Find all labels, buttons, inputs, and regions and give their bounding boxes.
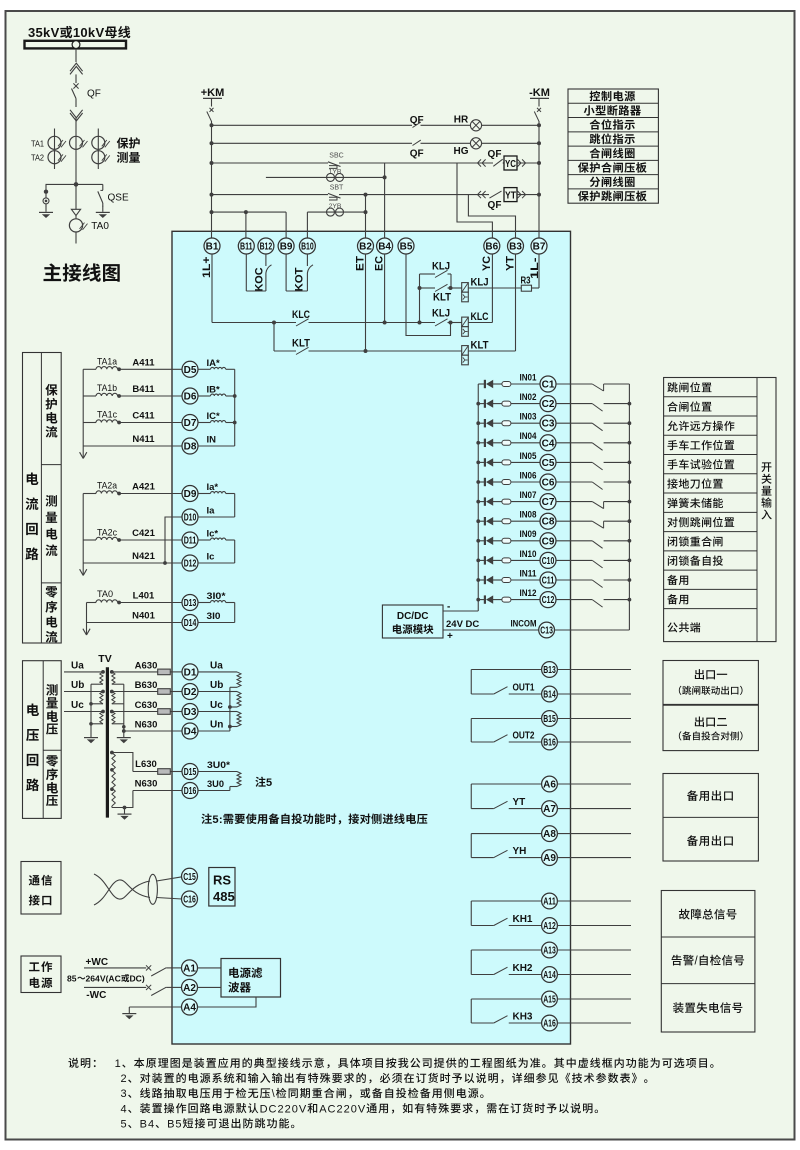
svg-text:DC): DC) [129, 973, 144, 983]
svg-text:C2: C2 [542, 399, 555, 410]
svg-text:3I0: 3I0 [207, 611, 221, 622]
svg-text:C421: C421 [132, 528, 155, 539]
svg-text:C630: C630 [135, 700, 158, 711]
svg-text:C10: C10 [542, 556, 555, 567]
svg-text:A14: A14 [543, 970, 556, 981]
svg-text:C11: C11 [542, 576, 555, 587]
svg-text:C8: C8 [542, 517, 555, 528]
svg-text:A421: A421 [132, 482, 155, 493]
svg-text:A6: A6 [543, 780, 556, 791]
svg-text:1L+: 1L+ [201, 257, 213, 279]
svg-text:TA0: TA0 [97, 589, 113, 599]
svg-text:Ia: Ia [207, 506, 216, 517]
svg-text:/: / [694, 956, 698, 968]
svg-text:A7: A7 [543, 804, 556, 815]
svg-text:B411: B411 [132, 384, 155, 395]
svg-text:A1: A1 [183, 963, 196, 974]
svg-text:5:: 5: [212, 814, 222, 826]
svg-text:B4: B4 [378, 242, 391, 253]
svg-text:QF: QF [87, 89, 101, 100]
svg-text:L630: L630 [135, 759, 157, 770]
svg-text:KOT: KOT [294, 267, 306, 291]
svg-text:5: 5 [121, 1118, 128, 1130]
svg-text:IN01: IN01 [520, 372, 538, 383]
svg-text:KLJ: KLJ [432, 261, 450, 273]
svg-text:85: 85 [67, 973, 77, 983]
svg-text:485: 485 [213, 889, 235, 904]
svg-text:B5: B5 [400, 242, 413, 253]
svg-text:B4: B4 [140, 1118, 155, 1130]
svg-text:2: 2 [121, 1073, 128, 1085]
svg-text:3U0: 3U0 [207, 779, 224, 790]
svg-text:Ub: Ub [210, 680, 223, 691]
svg-text:C6: C6 [542, 478, 555, 489]
svg-text:+WC: +WC [86, 957, 109, 968]
svg-text:TV: TV [98, 653, 111, 665]
svg-text:D11: D11 [184, 536, 197, 547]
svg-text:D13: D13 [184, 598, 197, 609]
svg-text:DC/DC: DC/DC [397, 611, 429, 622]
svg-text:TA1b: TA1b [97, 383, 117, 393]
svg-text:KLJ: KLJ [471, 277, 489, 289]
svg-text:B10: B10 [301, 242, 314, 253]
svg-text:DC220V: DC220V [260, 1103, 308, 1115]
svg-text:QF: QF [410, 149, 424, 160]
svg-text:KLJ: KLJ [432, 308, 450, 320]
svg-text:C13: C13 [540, 626, 553, 637]
svg-text:B630: B630 [135, 680, 158, 691]
svg-text:KLT: KLT [292, 338, 310, 350]
svg-text:D1: D1 [184, 667, 197, 678]
svg-text:A11: A11 [543, 897, 556, 908]
svg-text:A8: A8 [543, 829, 556, 840]
svg-text:KLC: KLC [292, 309, 310, 321]
svg-text:3: 3 [121, 1088, 128, 1100]
svg-text:IN09: IN09 [520, 529, 537, 540]
svg-text:N401: N401 [132, 611, 155, 622]
svg-text:QF: QF [410, 115, 424, 126]
svg-text:YT: YT [505, 256, 517, 271]
svg-text:TA2c: TA2c [97, 528, 117, 538]
svg-text:L401: L401 [133, 591, 155, 602]
svg-text:D3: D3 [184, 707, 197, 718]
svg-text:A9: A9 [543, 853, 556, 864]
svg-text:Un: Un [210, 719, 223, 730]
svg-text:IN12: IN12 [520, 588, 537, 599]
svg-text:N421: N421 [132, 551, 155, 562]
svg-text:C4: C4 [542, 438, 555, 449]
svg-text:A16: A16 [543, 1019, 556, 1030]
svg-text:24V DC: 24V DC [446, 619, 479, 630]
svg-text:N630: N630 [135, 719, 158, 730]
svg-text:IN07: IN07 [520, 490, 537, 501]
svg-text:QSE: QSE [108, 193, 129, 204]
svg-text:D5: D5 [184, 365, 197, 376]
svg-text:D14: D14 [184, 618, 197, 629]
svg-text:KLT: KLT [433, 292, 451, 304]
svg-text:IN04: IN04 [520, 431, 538, 442]
svg-text:1: 1 [115, 1058, 122, 1070]
svg-text:OUT2: OUT2 [513, 731, 535, 742]
svg-text:B14: B14 [543, 690, 556, 701]
svg-text:B6: B6 [485, 242, 498, 253]
svg-text:B9: B9 [280, 242, 293, 253]
svg-text:Ic: Ic [207, 552, 215, 563]
svg-text:Ua: Ua [71, 660, 84, 671]
svg-text:1YB: 1YB [329, 168, 342, 175]
svg-text:YC: YC [481, 256, 493, 271]
svg-text:+: + [447, 631, 453, 642]
svg-text:Ua: Ua [210, 660, 223, 671]
svg-text:TA1a: TA1a [97, 356, 117, 366]
svg-text:IN08: IN08 [520, 510, 537, 521]
svg-text:D9: D9 [184, 489, 197, 500]
svg-text:-WC: -WC [86, 990, 106, 1001]
svg-text:TA2: TA2 [31, 153, 44, 163]
svg-text:4: 4 [121, 1103, 128, 1115]
svg-text:A4: A4 [183, 1003, 196, 1014]
svg-text:3U0*: 3U0* [207, 760, 230, 771]
svg-text:KOC: KOC [254, 267, 266, 291]
svg-text:C3: C3 [542, 419, 555, 430]
svg-text:B1: B1 [206, 242, 219, 253]
svg-text:D16: D16 [184, 786, 197, 797]
svg-text:OUT1: OUT1 [513, 683, 535, 694]
svg-text:C15: C15 [183, 872, 196, 883]
svg-text:KH1: KH1 [513, 914, 533, 925]
svg-text:2YB: 2YB [329, 203, 342, 210]
svg-text:C5: C5 [542, 458, 555, 469]
svg-text:D7: D7 [184, 418, 197, 429]
svg-text:KH3: KH3 [513, 1012, 533, 1023]
svg-text:KLT: KLT [471, 340, 489, 352]
svg-text:SBT: SBT [330, 185, 344, 192]
svg-text:-: - [447, 602, 450, 613]
svg-text:-KM: -KM [529, 87, 550, 99]
svg-text:A2: A2 [183, 983, 196, 994]
svg-text:C1: C1 [542, 380, 555, 391]
svg-text:5: 5 [266, 777, 272, 789]
svg-text:IN11: IN11 [520, 568, 538, 579]
svg-text:C16: C16 [183, 895, 196, 906]
svg-text:A12: A12 [543, 921, 556, 932]
svg-text:C9: C9 [542, 536, 555, 547]
svg-text:D6: D6 [184, 392, 197, 403]
svg-text:AC220V: AC220V [319, 1103, 366, 1115]
svg-text:IN06: IN06 [520, 470, 537, 481]
svg-text:35kV: 35kV [28, 25, 60, 40]
svg-text:TA0: TA0 [91, 221, 109, 232]
svg-text:B13: B13 [543, 665, 556, 676]
svg-text:SBC: SBC [329, 153, 343, 160]
svg-text:TA1: TA1 [31, 138, 44, 148]
svg-text:TA2a: TA2a [97, 481, 117, 491]
svg-text:D12: D12 [184, 559, 197, 570]
svg-text:KLC: KLC [471, 311, 489, 323]
svg-text:IN05: IN05 [520, 451, 538, 462]
svg-text:N411: N411 [132, 434, 155, 445]
svg-text:B16: B16 [543, 738, 556, 749]
svg-text:YT: YT [505, 190, 516, 202]
svg-text:C411: C411 [132, 411, 155, 422]
svg-text:RS: RS [213, 873, 231, 888]
svg-text:YH: YH [513, 846, 527, 857]
svg-text:B11: B11 [240, 242, 253, 253]
svg-text:TA1c: TA1c [97, 410, 117, 420]
svg-text:B2: B2 [359, 242, 372, 253]
svg-text:B3: B3 [509, 242, 522, 253]
svg-text:A411: A411 [132, 358, 155, 369]
svg-text:D10: D10 [184, 513, 197, 524]
svg-text:C7: C7 [542, 497, 555, 508]
svg-text:ET: ET [355, 256, 367, 271]
svg-text:IN: IN [207, 435, 217, 446]
svg-text:HR: HR [454, 114, 469, 125]
svg-text:EC: EC [374, 256, 386, 271]
svg-text:IN02: IN02 [520, 392, 537, 403]
svg-text:D15: D15 [184, 767, 197, 778]
svg-text:IN03: IN03 [520, 412, 537, 423]
svg-text:\: \ [272, 1088, 276, 1100]
svg-text:YT: YT [513, 797, 526, 808]
svg-text:D8: D8 [184, 442, 197, 453]
svg-text:D4: D4 [184, 727, 197, 738]
svg-text:264V(AC: 264V(AC [86, 973, 121, 983]
svg-text:D2: D2 [184, 687, 197, 698]
svg-text:YC: YC [505, 158, 516, 170]
svg-text:A630: A630 [135, 660, 158, 671]
svg-text:B5: B5 [167, 1118, 182, 1130]
svg-text:B7: B7 [533, 242, 546, 253]
svg-text:HG: HG [454, 146, 469, 157]
svg-text:INCOM: INCOM [511, 618, 537, 629]
svg-text:QF: QF [488, 149, 502, 160]
svg-text:Uc: Uc [71, 700, 84, 711]
svg-text:IN10: IN10 [520, 549, 537, 560]
svg-text:QF: QF [488, 200, 502, 211]
svg-text:B15: B15 [543, 714, 556, 725]
svg-text:A13: A13 [543, 946, 556, 957]
svg-text:KH2: KH2 [513, 963, 533, 974]
svg-text:Uc: Uc [210, 700, 223, 711]
svg-text:+KM: +KM [201, 87, 225, 99]
svg-text:B12: B12 [260, 242, 273, 253]
svg-text:Ub: Ub [71, 680, 84, 691]
svg-text:10kV: 10kV [73, 25, 105, 40]
svg-text:N630: N630 [135, 778, 158, 789]
svg-text:C12: C12 [542, 595, 555, 606]
svg-text:A15: A15 [543, 995, 556, 1006]
